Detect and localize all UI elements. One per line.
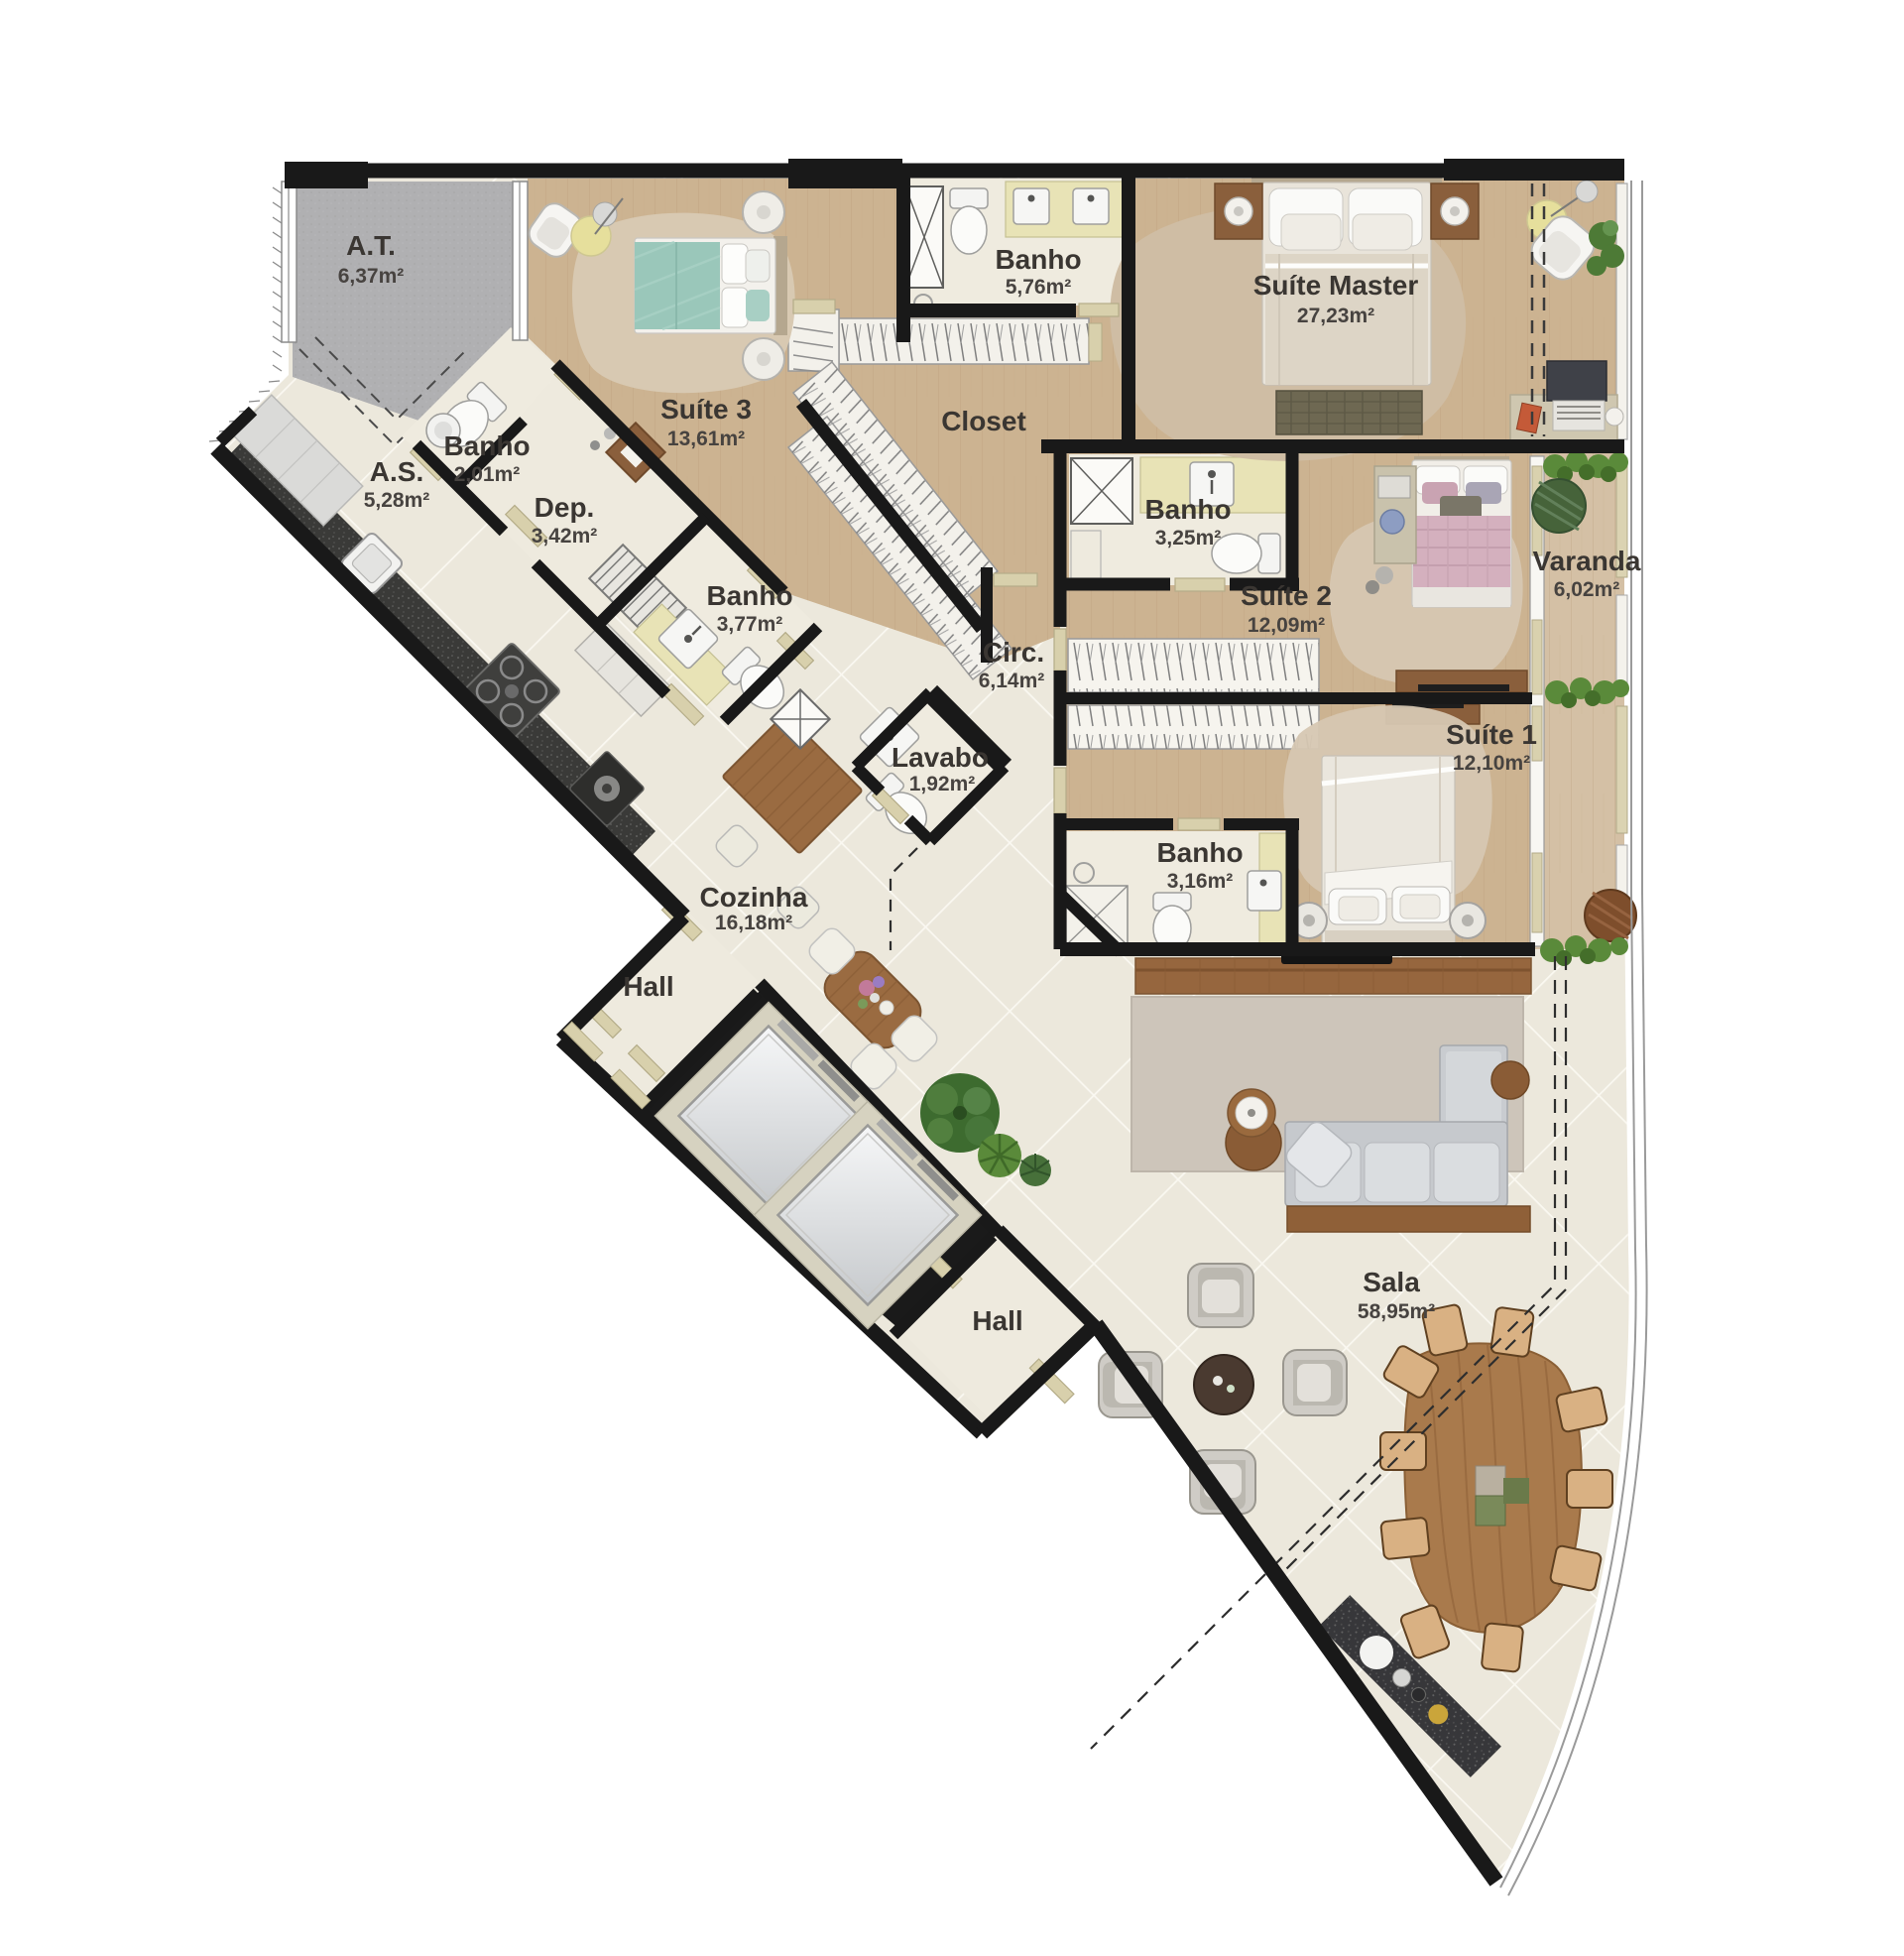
svg-text:1,92m²: 1,92m² bbox=[909, 773, 976, 795]
svg-text:A.S.: A.S. bbox=[370, 456, 423, 487]
svg-text:Banho: Banho bbox=[706, 580, 792, 611]
svg-text:Closet: Closet bbox=[941, 406, 1026, 436]
svg-text:Cozinha: Cozinha bbox=[700, 882, 808, 913]
svg-text:13,61m²: 13,61m² bbox=[667, 428, 745, 450]
svg-text:5,28m²: 5,28m² bbox=[364, 489, 430, 512]
svg-text:Suíte 2: Suíte 2 bbox=[1241, 580, 1332, 611]
svg-text:6,02m²: 6,02m² bbox=[1554, 578, 1620, 601]
svg-text:Circ.: Circ. bbox=[983, 637, 1044, 668]
svg-text:Banho: Banho bbox=[995, 244, 1081, 275]
svg-text:16,18m²: 16,18m² bbox=[715, 912, 792, 934]
svg-text:5,76m²: 5,76m² bbox=[1006, 276, 1072, 299]
svg-text:Dep.: Dep. bbox=[535, 492, 595, 523]
svg-text:3,16m²: 3,16m² bbox=[1167, 870, 1234, 893]
svg-text:6,37m²: 6,37m² bbox=[338, 265, 405, 288]
svg-text:Lavabo: Lavabo bbox=[892, 742, 989, 773]
svg-text:3,25m²: 3,25m² bbox=[1155, 527, 1222, 550]
svg-text:A.T.: A.T. bbox=[346, 230, 396, 261]
svg-text:Sala: Sala bbox=[1363, 1267, 1420, 1297]
svg-text:Banho: Banho bbox=[1144, 494, 1231, 525]
svg-text:Hall: Hall bbox=[972, 1305, 1022, 1336]
svg-text:12,10m²: 12,10m² bbox=[1453, 752, 1530, 775]
svg-text:6,14m²: 6,14m² bbox=[979, 670, 1045, 692]
svg-text:2,01m²: 2,01m² bbox=[454, 463, 521, 486]
svg-text:Suíte Master: Suíte Master bbox=[1253, 270, 1419, 301]
svg-text:Banho: Banho bbox=[1156, 837, 1243, 868]
svg-text:3,42m²: 3,42m² bbox=[532, 525, 598, 548]
svg-text:Hall: Hall bbox=[623, 971, 673, 1002]
svg-text:Suíte 3: Suíte 3 bbox=[660, 394, 752, 425]
svg-text:12,09m²: 12,09m² bbox=[1248, 614, 1325, 637]
svg-text:Suíte 1: Suíte 1 bbox=[1446, 719, 1537, 750]
svg-text:Banho: Banho bbox=[443, 430, 530, 461]
svg-text:27,23m²: 27,23m² bbox=[1297, 305, 1374, 327]
svg-text:3,77m²: 3,77m² bbox=[717, 613, 783, 636]
svg-text:58,95m²: 58,95m² bbox=[1358, 1300, 1435, 1323]
svg-text:Varanda: Varanda bbox=[1533, 546, 1641, 576]
